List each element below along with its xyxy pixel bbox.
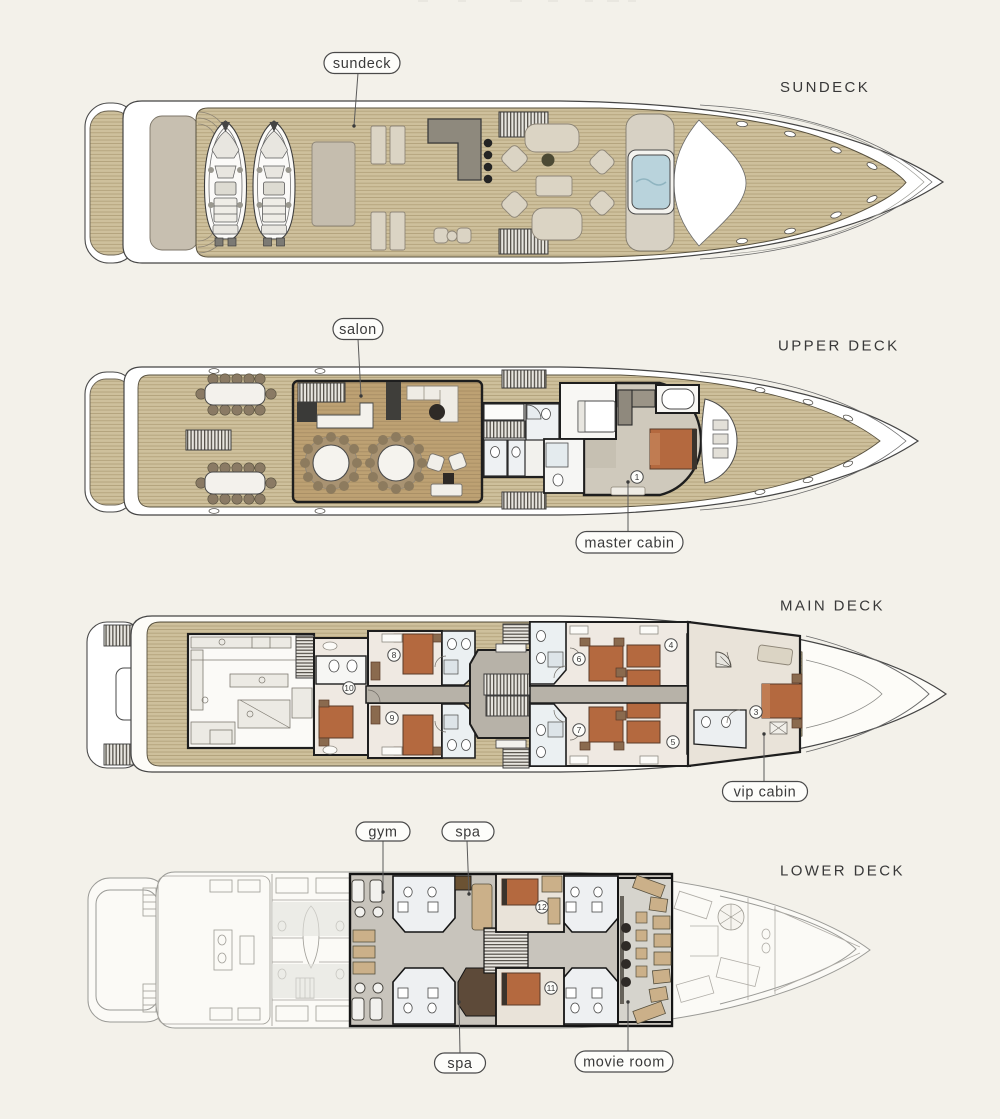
svg-text:1: 1 — [635, 472, 640, 482]
svg-text:spa: spa — [447, 1056, 473, 1072]
svg-text:10: 10 — [344, 683, 354, 693]
svg-text:3: 3 — [754, 707, 759, 717]
svg-text:vip cabin: vip cabin — [734, 785, 797, 801]
svg-text:7: 7 — [577, 725, 582, 735]
svg-text:8: 8 — [392, 650, 397, 660]
svg-text:master cabin: master cabin — [584, 536, 674, 552]
svg-text:5: 5 — [671, 737, 676, 747]
svg-text:spa: spa — [455, 825, 481, 841]
svg-text:6: 6 — [577, 654, 582, 664]
svg-text:gym: gym — [368, 825, 397, 841]
svg-text:4: 4 — [669, 640, 674, 650]
svg-text:sundeck: sundeck — [333, 56, 391, 72]
svg-text:salon: salon — [339, 322, 377, 338]
svg-text:movie room: movie room — [583, 1055, 665, 1071]
svg-text:UPPER DECK: UPPER DECK — [778, 338, 900, 355]
svg-text:MAIN DECK: MAIN DECK — [780, 598, 885, 615]
svg-text:9: 9 — [390, 713, 395, 723]
svg-text:SUNDECK: SUNDECK — [780, 79, 870, 96]
svg-text:LOWER DECK: LOWER DECK — [780, 863, 905, 880]
svg-text:11: 11 — [547, 983, 556, 993]
svg-text:12: 12 — [537, 902, 547, 912]
